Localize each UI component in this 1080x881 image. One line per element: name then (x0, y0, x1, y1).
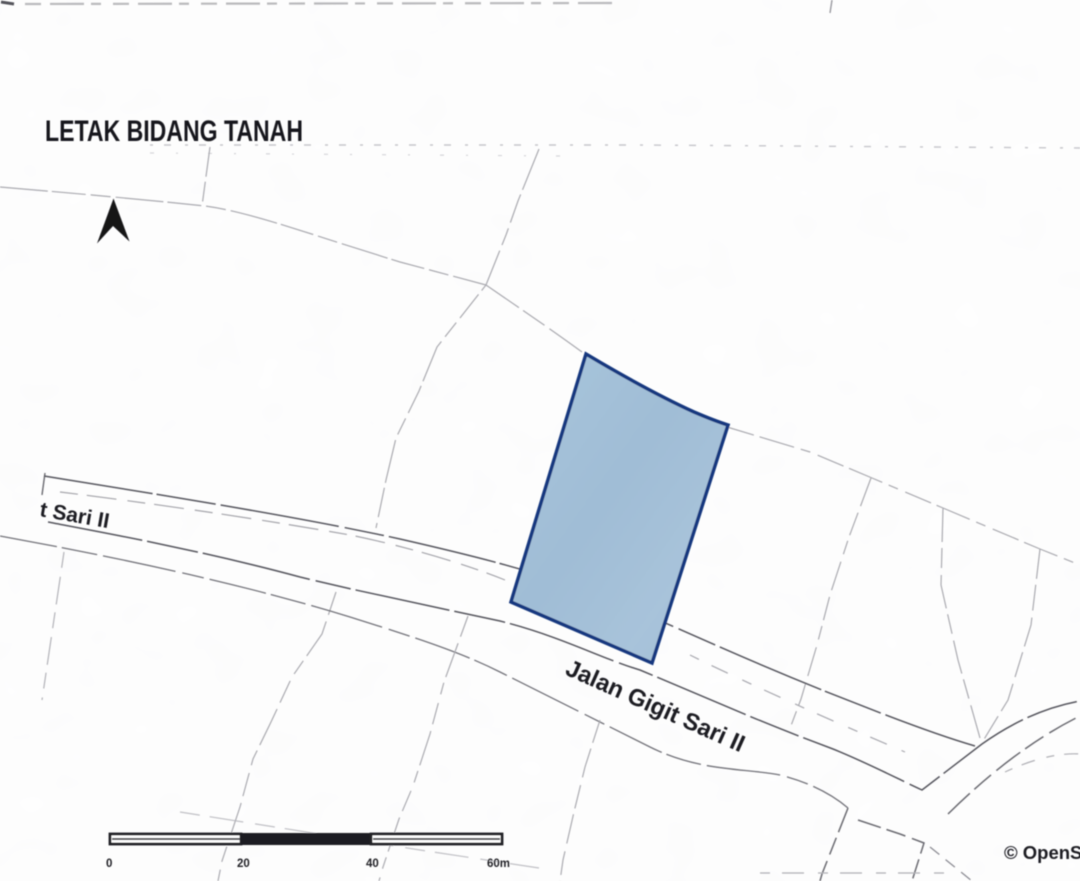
svg-text:LETAK BIDANG TANAH: LETAK BIDANG TANAH (45, 115, 303, 148)
svg-text:40: 40 (366, 858, 379, 870)
svg-text:0: 0 (106, 858, 112, 870)
svg-text:20: 20 (237, 858, 250, 870)
svg-text:© OpenStreetMap: © OpenStreetMap (1004, 842, 1080, 863)
svg-text:60m: 60m (487, 858, 510, 870)
